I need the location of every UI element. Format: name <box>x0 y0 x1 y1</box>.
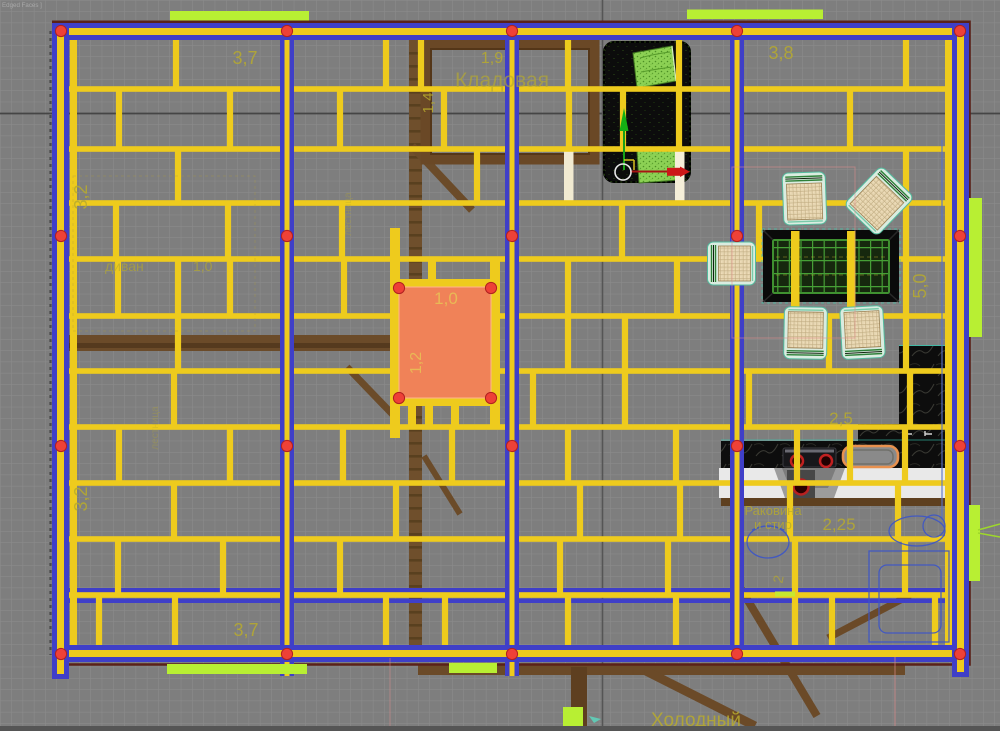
svg-text:3,2: 3,2 <box>71 486 91 511</box>
svg-text:Edged Faces ]: Edged Faces ] <box>2 2 42 9</box>
svg-text:Раковина: Раковина <box>744 503 802 518</box>
svg-text:3,7: 3,7 <box>233 620 258 640</box>
svg-text:лестница: лестница <box>150 406 161 450</box>
svg-text:1,4: 1,4 <box>420 93 437 114</box>
svg-text:3,7: 3,7 <box>232 48 257 68</box>
svg-text:1,0: 1,0 <box>434 289 458 308</box>
svg-text:и стир: и стир <box>754 517 792 532</box>
svg-text:3,2: 3,2 <box>71 184 91 209</box>
svg-text:3,8: 3,8 <box>768 43 793 63</box>
svg-text:Холодный: Холодный <box>651 710 741 726</box>
svg-text:Кладовая: Кладовая <box>455 69 549 92</box>
svg-text:5,0: 5,0 <box>910 273 930 298</box>
svg-text:2,25: 2,25 <box>822 515 855 534</box>
svg-text:1,9: 1,9 <box>481 50 503 67</box>
svg-text:диван: диван <box>105 258 144 274</box>
svg-text:лестница: лестница <box>343 192 354 236</box>
svg-text:1,2: 1,2 <box>408 352 425 374</box>
svg-text:1,0: 1,0 <box>193 258 213 274</box>
svg-text:2,5: 2,5 <box>829 409 853 428</box>
